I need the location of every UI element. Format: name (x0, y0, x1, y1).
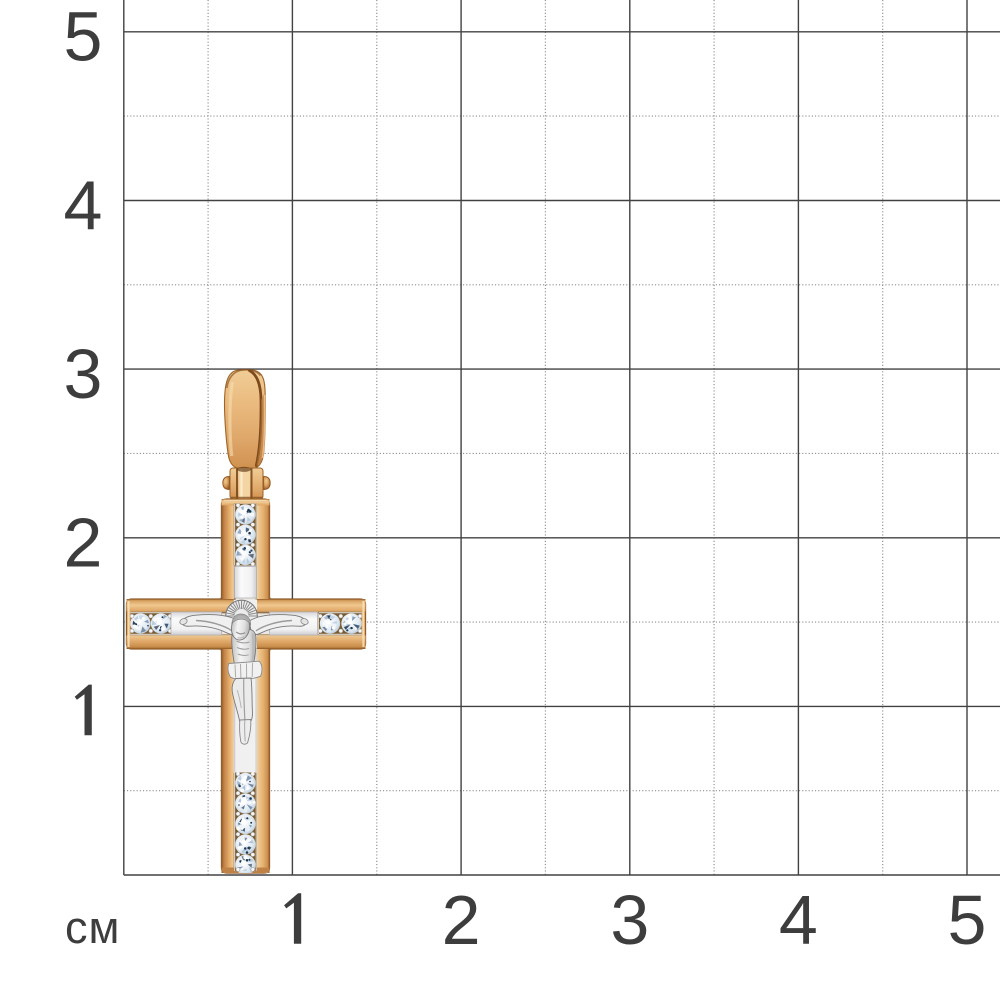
svg-text:5: 5 (64, 0, 103, 76)
svg-text:4: 4 (779, 881, 818, 959)
svg-text:2: 2 (442, 881, 481, 959)
svg-text:4: 4 (64, 166, 103, 244)
svg-text:3: 3 (610, 881, 649, 959)
svg-text:5: 5 (948, 881, 987, 959)
svg-text:см: см (65, 902, 120, 953)
svg-text:3: 3 (64, 335, 103, 413)
svg-text:2: 2 (64, 504, 103, 582)
